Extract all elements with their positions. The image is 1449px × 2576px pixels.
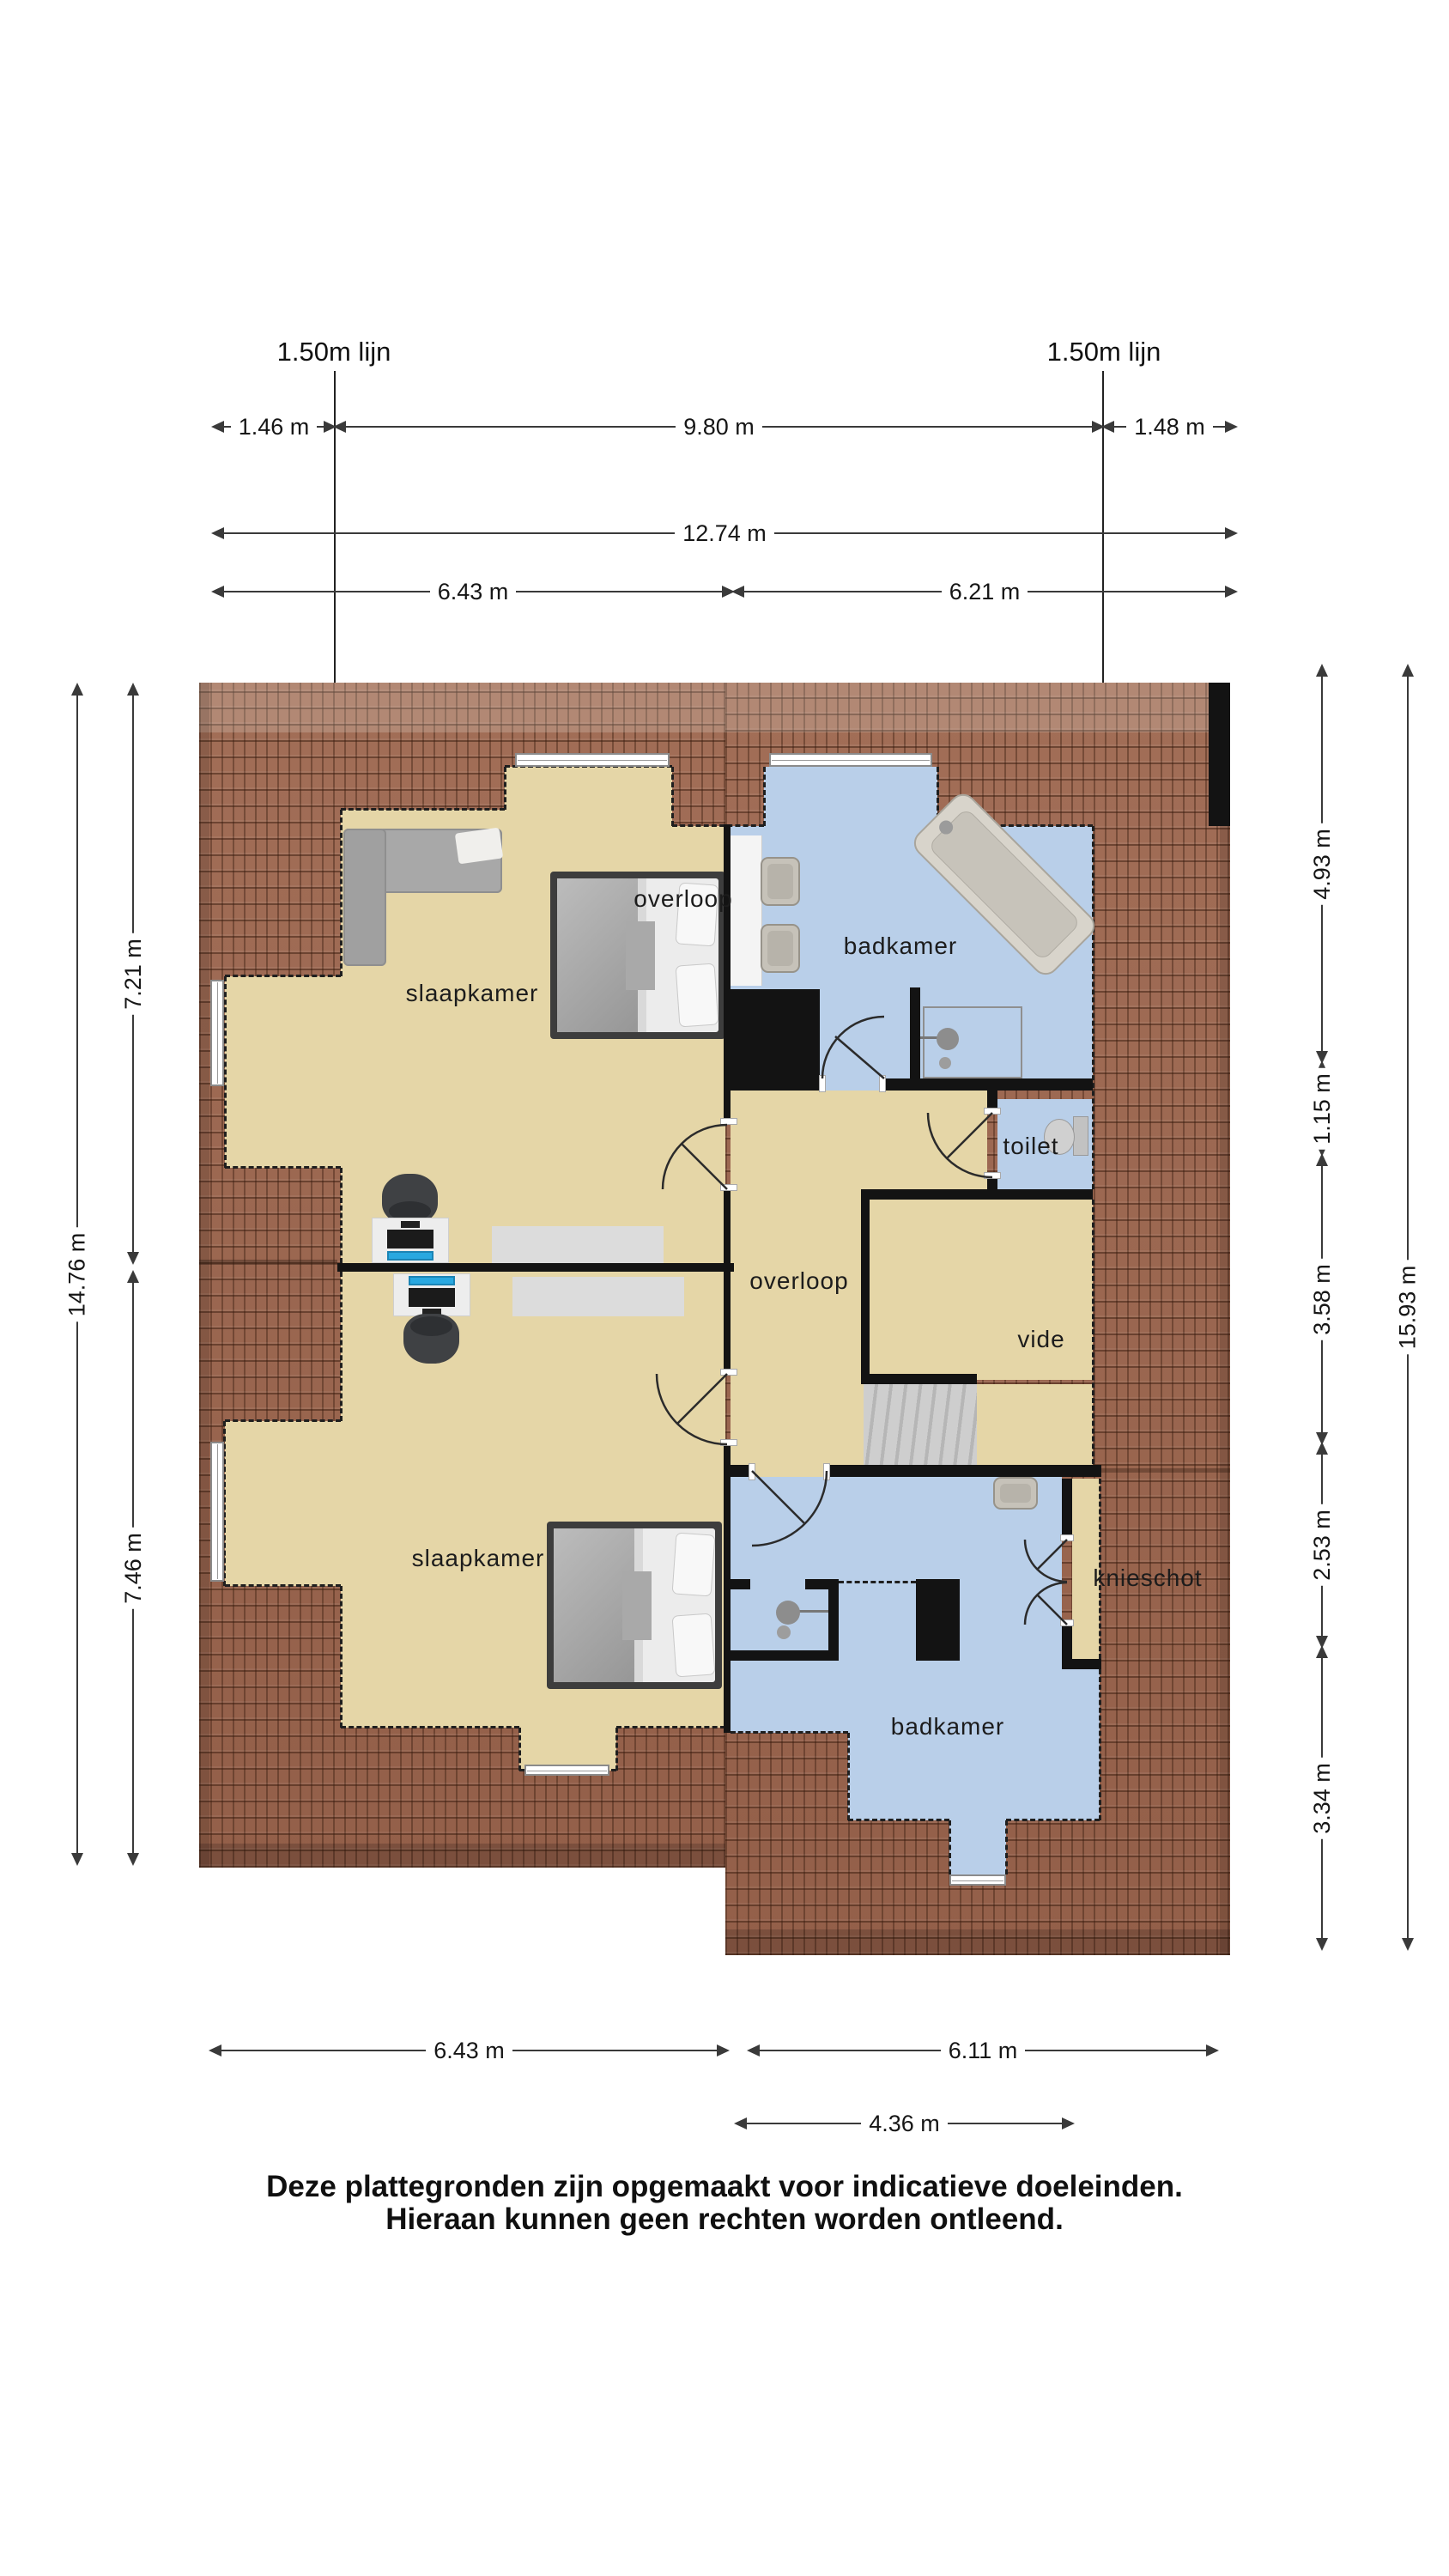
disclaimer-line-1: Deze plattegronden zijn opgemaakt voor i… — [0, 2171, 1449, 2203]
door-arc — [663, 1125, 727, 1189]
dim-top-6-21: 6.21 m — [733, 576, 1236, 607]
room-label-slaapkamer-top: slaapkamer — [406, 980, 539, 1007]
dim-right-15-93: 15.93 m — [1392, 665, 1423, 1949]
door-swing-arcs — [199, 683, 1230, 1955]
dim-bottom-6-11: 6.11 m — [749, 2035, 1217, 2066]
dim-label: 7.21 m — [120, 933, 147, 1015]
disclaimer-text: Deze plattegronden zijn opgemaakt voor i… — [0, 2171, 1449, 2236]
door-arc — [928, 1113, 992, 1177]
disclaimer-line-2: Hieraan kunnen geen rechten worden ontle… — [0, 2203, 1449, 2236]
room-label-overloop-mid: overloop — [749, 1267, 848, 1295]
dim-left-7-21: 7.21 m — [118, 684, 149, 1263]
room-label-badkamer-bottom: badkamer — [891, 1713, 1005, 1741]
dim-label: 4.36 m — [861, 2111, 948, 2137]
dim-right-3-58: 3.58 m — [1307, 1155, 1337, 1443]
door-arc — [1025, 1583, 1067, 1625]
door-arc — [822, 1017, 884, 1078]
dim-top-1-48: 1.48 m — [1103, 411, 1236, 442]
floorplan: slaapkamer overloop badkamer toilet over… — [199, 683, 1230, 1955]
room-label-overloop-top: overloop — [634, 885, 732, 913]
dim-top-12-74: 12.74 m — [213, 518, 1236, 549]
dim-label: 6.21 m — [942, 579, 1028, 605]
dim-top-9-80: 9.80 m — [335, 411, 1103, 442]
dim-label: 3.34 m — [1309, 1758, 1336, 1839]
dim-right-2-53: 2.53 m — [1307, 1443, 1337, 1647]
dim-label: 4.93 m — [1309, 823, 1336, 905]
dim-label: 15.93 m — [1395, 1261, 1422, 1355]
dim-right-1-15: 1.15 m — [1307, 1062, 1337, 1155]
reference-line-label-right: 1.50m lijn — [1047, 337, 1161, 368]
dim-label: 14.76 m — [64, 1227, 91, 1321]
dim-label: 2.53 m — [1309, 1504, 1336, 1586]
room-label-badkamer-top: badkamer — [844, 933, 958, 960]
dim-left-14-76: 14.76 m — [62, 684, 93, 1864]
dim-right-3-34: 3.34 m — [1307, 1647, 1337, 1949]
dim-label: 1.46 m — [231, 414, 318, 440]
door-arc — [657, 1374, 727, 1444]
floorplan-page: { "reference_lines": { "left": "1.50m li… — [0, 0, 1449, 2576]
dim-right-4-93: 4.93 m — [1307, 665, 1337, 1062]
dim-top-6-43: 6.43 m — [213, 576, 733, 607]
dim-bottom-4-36: 4.36 m — [736, 2108, 1073, 2139]
dim-bottom-6-43: 6.43 m — [210, 2035, 728, 2066]
dim-label: 6.43 m — [430, 579, 517, 605]
room-label-vide: vide — [1017, 1326, 1064, 1353]
room-label-slaapkamer-bottom: slaapkamer — [412, 1545, 545, 1572]
dim-label: 12.74 m — [675, 520, 774, 547]
dim-left-7-46: 7.46 m — [118, 1272, 149, 1864]
dim-label: 7.46 m — [120, 1528, 147, 1609]
dim-label: 1.15 m — [1309, 1068, 1336, 1150]
dim-label: 1.48 m — [1126, 414, 1213, 440]
door-arc — [1025, 1540, 1067, 1582]
dim-label: 6.11 m — [941, 2038, 1026, 2064]
room-label-knieschot: knieschot — [1093, 1564, 1202, 1592]
dim-label: 6.43 m — [426, 2038, 512, 2064]
room-label-toilet: toilet — [1003, 1133, 1058, 1160]
dim-label: 3.58 m — [1309, 1259, 1336, 1340]
door-arc — [752, 1471, 827, 1546]
dim-label: 9.80 m — [676, 414, 762, 440]
dim-top-1-46: 1.46 m — [213, 411, 335, 442]
reference-line-label-left: 1.50m lijn — [277, 337, 391, 368]
